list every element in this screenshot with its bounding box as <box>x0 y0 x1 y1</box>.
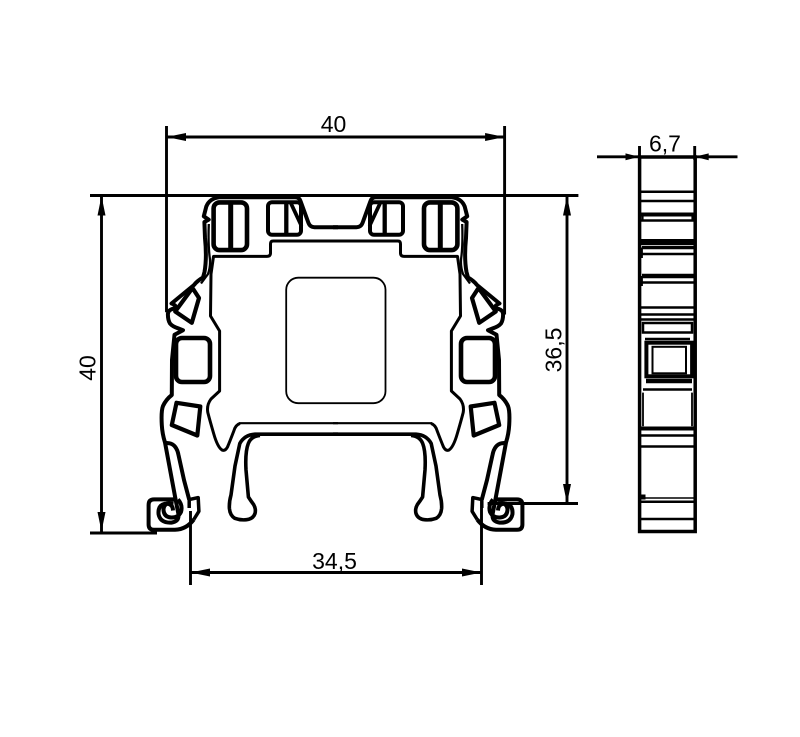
svg-text:6,7: 6,7 <box>649 131 681 157</box>
svg-text:36,5: 36,5 <box>541 328 567 373</box>
svg-text:40: 40 <box>74 355 100 381</box>
svg-text:34,5: 34,5 <box>312 548 357 574</box>
svg-text:40: 40 <box>321 111 347 137</box>
